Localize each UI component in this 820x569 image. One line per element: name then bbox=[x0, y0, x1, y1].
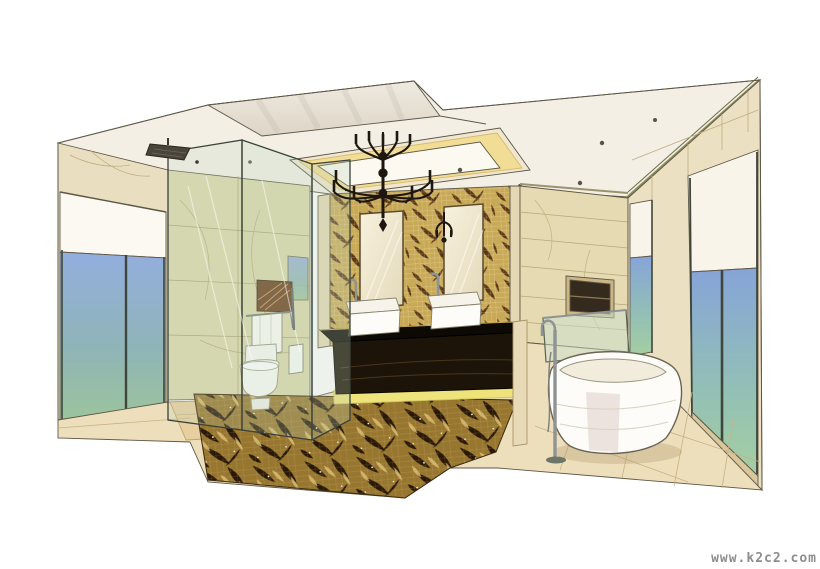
glass-panel-return bbox=[312, 160, 350, 440]
vessel-sink-right bbox=[428, 292, 481, 329]
left-window-wall bbox=[58, 143, 168, 423]
vanity-cabinet-front bbox=[333, 332, 526, 394]
bathroom-rendering: www.k2c2.com bbox=[0, 0, 820, 569]
glass-panel-center bbox=[242, 140, 312, 440]
left-window-glass bbox=[60, 252, 166, 423]
tub-front-shading bbox=[586, 392, 620, 452]
glass-panel-left bbox=[168, 140, 242, 430]
marble-end-column bbox=[513, 320, 527, 446]
rendering-canvas bbox=[0, 0, 820, 569]
watermark: www.k2c2.com bbox=[711, 551, 817, 566]
vessel-sink-left bbox=[346, 298, 400, 336]
glass-shower-enclosure bbox=[146, 138, 350, 440]
marble-strip-right bbox=[510, 186, 520, 342]
far-window-shade bbox=[630, 200, 652, 258]
far-window-glass bbox=[630, 256, 652, 356]
